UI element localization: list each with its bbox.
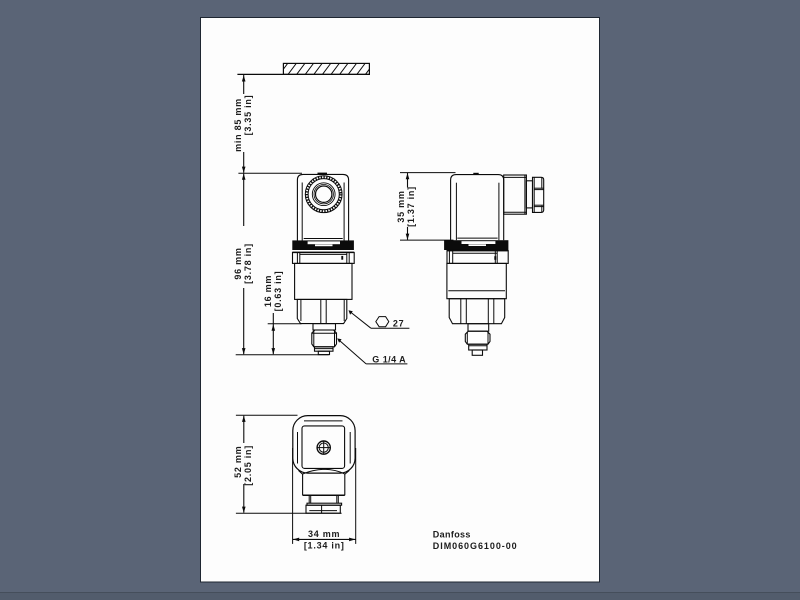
svg-text:DIM060G6100-00: DIM060G6100-00: [433, 541, 518, 551]
svg-text:16 mm[0.63 in]: 16 mm[0.63 in]: [263, 271, 283, 312]
svg-text:[1.34 in]: [1.34 in]: [304, 541, 345, 551]
svg-text:Danfoss: Danfoss: [433, 530, 471, 540]
svg-text:34 mm: 34 mm: [308, 529, 340, 539]
svg-text:35 mm[1.37 in]: 35 mm[1.37 in]: [396, 186, 416, 227]
svg-text:96 mm[3.78 in]: 96 mm[3.78 in]: [233, 243, 253, 284]
svg-text:27: 27: [393, 319, 405, 329]
svg-text:G 1/4 A: G 1/4 A: [372, 355, 406, 365]
